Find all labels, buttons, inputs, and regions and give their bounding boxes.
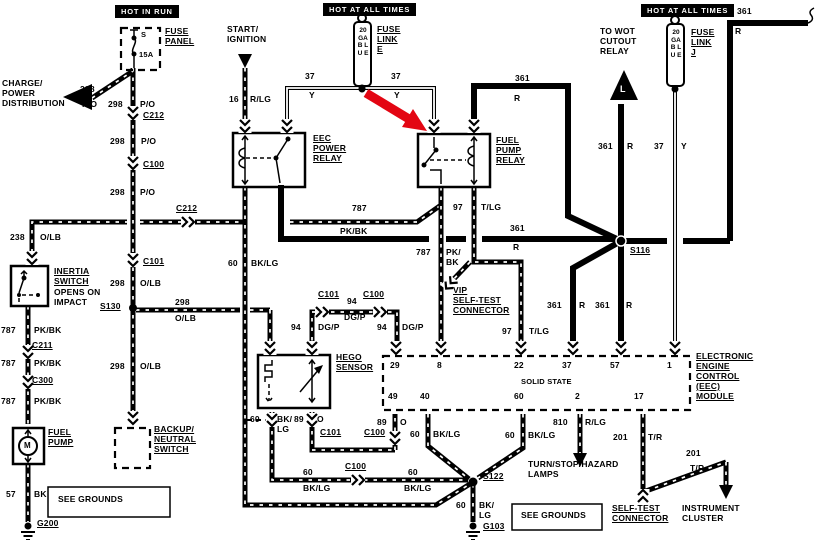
- instrument-cluster-arrow: [719, 485, 733, 499]
- instrument-cluster-label: INSTRUMENT CLUSTER: [682, 503, 740, 523]
- wire-color: R/LG: [585, 417, 606, 427]
- wire-num: 361: [547, 300, 562, 310]
- wire-num: 361: [737, 6, 752, 16]
- wire-color: T/LG: [481, 202, 501, 212]
- vip-self-test-label: VIP SELF-TEST CONNECTOR: [453, 285, 509, 315]
- splice-s116: [616, 236, 626, 246]
- wire-num: 298: [110, 136, 125, 146]
- wire-color: T/R: [690, 463, 704, 473]
- wire-color: Y: [394, 90, 400, 100]
- see-grounds-label-2: SEE GROUNDS: [521, 510, 586, 520]
- wire-color: BK/LG: [528, 430, 555, 440]
- motor-letter: M: [24, 441, 31, 451]
- wire-num: 60: [505, 430, 515, 440]
- fuse-link-j-label: FUSE LINK J: [691, 27, 714, 57]
- fuse-link-e-gauge: 20 GA B L U E: [356, 27, 370, 57]
- wire-num: 298: [175, 297, 190, 307]
- wire-color: BK/LG: [433, 429, 460, 439]
- wire-color: R/LG: [250, 94, 271, 104]
- splice-s130: [129, 304, 137, 312]
- wire-color: BK/LG: [404, 483, 431, 493]
- header-hot-in-run: HOT IN RUN: [115, 5, 179, 18]
- wire-num: 60: [408, 467, 418, 477]
- wire-color: PK/ BK: [446, 247, 461, 267]
- connector-c300: C300: [32, 375, 53, 385]
- fuse-rating-label: 15A: [139, 50, 153, 60]
- pin-2: 2: [575, 391, 580, 401]
- wire-continuation-squiggle: [808, 8, 814, 23]
- wire-num: 787: [1, 396, 16, 406]
- wiring-diagram: HOT IN RUN HOT AT ALL TIMES HOT AT ALL T…: [0, 0, 819, 540]
- wire-num: 201: [686, 448, 701, 458]
- splice-s122-label: S122: [483, 471, 504, 481]
- wire-color: O: [317, 414, 324, 424]
- inertia-switch-note: OPENS ON IMPACT: [54, 287, 100, 307]
- inertia-switch-box: [11, 266, 48, 306]
- wire-color: R: [513, 242, 519, 252]
- wire-60-pin40: [428, 414, 469, 479]
- pin-40: 40: [420, 391, 430, 401]
- splice-s130-label: S130: [100, 301, 121, 311]
- wire-num: 60: [228, 258, 238, 268]
- wire-inertia-c212: [32, 205, 441, 262]
- eec-relay-internals: [239, 136, 291, 184]
- wire-color: P/O: [82, 99, 97, 109]
- wire-color: R: [626, 300, 632, 310]
- connector-c100-main: C100: [143, 159, 164, 169]
- wire-num: 60: [410, 429, 420, 439]
- solid-state-label: SOLID STATE: [521, 377, 572, 387]
- wire-num: 201: [613, 432, 628, 442]
- wire-num: 37: [391, 71, 401, 81]
- wire-num: 37: [654, 141, 664, 151]
- inertia-switch-label: INERTIA SWITCH: [54, 266, 89, 286]
- wire-num: 787: [1, 358, 16, 368]
- wire-num: 60: [303, 467, 313, 477]
- header-hot-at-all-times-mid: HOT AT ALL TIMES: [323, 3, 416, 16]
- splice-s122: [469, 478, 478, 487]
- wire-num: 787: [1, 325, 16, 335]
- wire-num: 94: [347, 296, 357, 306]
- see-grounds-label-1: SEE GROUNDS: [58, 494, 123, 504]
- pin-37: 37: [562, 360, 572, 370]
- wire-color: BK/LG: [303, 483, 330, 493]
- eec-power-relay-label: EEC POWER RELAY: [313, 133, 346, 163]
- wire-num: 94: [291, 322, 301, 332]
- wire-color: O/LB: [140, 361, 161, 371]
- wire-color: R: [735, 26, 741, 36]
- wire-inertia-c212: [32, 205, 441, 262]
- wire-num: 57: [6, 489, 16, 499]
- wire-num: 97: [453, 202, 463, 212]
- connector-c212-main: C212: [143, 110, 164, 120]
- wire-color: PK/BK: [34, 396, 61, 406]
- wire-color: T/R: [648, 432, 662, 442]
- hego-sensor-label: HEGO SENSOR: [336, 352, 373, 372]
- fuse-panel-label: FUSE PANEL: [165, 26, 194, 46]
- connector-c100-bot: C100: [364, 427, 385, 437]
- wire-color: O/LB: [140, 278, 161, 288]
- wire-color: BK/ LG: [277, 414, 292, 434]
- turn-stop-label: TURN/STOP/HAZARD LAMPS: [528, 459, 618, 479]
- fuel-pump-relay-internals: [422, 137, 478, 184]
- wire-num: 89: [294, 414, 304, 424]
- wire-color: R: [514, 93, 520, 103]
- wire-num: 298: [80, 84, 95, 94]
- splice-fuse-link-e: [359, 85, 366, 92]
- connector-c101-main: C101: [143, 256, 164, 266]
- wire-color: BK/ LG: [479, 500, 494, 520]
- eec-power-relay-box: [233, 133, 305, 187]
- inertia-switch-internals: [17, 271, 40, 302]
- connector-c100-top: C100: [363, 289, 384, 299]
- start-ignition-arrow: [238, 54, 252, 68]
- wire-num: 361: [595, 300, 610, 310]
- wire-num: 810: [553, 417, 568, 427]
- connector-c100-low: C100: [345, 461, 366, 471]
- wire-color: P/O: [141, 136, 156, 146]
- wire-num: 16: [229, 94, 239, 104]
- pin-57: 57: [610, 360, 620, 370]
- connector-c212-h: C212: [176, 203, 197, 213]
- wire-60-pin60: [478, 414, 523, 478]
- wire-num: 298: [110, 187, 125, 197]
- wire-num: 89: [377, 417, 387, 427]
- wire-num: 361: [598, 141, 613, 151]
- wire-color: T/LG: [529, 326, 549, 336]
- wire-color: DG/P: [344, 312, 366, 322]
- wire-num: 787: [416, 247, 431, 257]
- connector-c211: C211: [32, 340, 53, 350]
- wire-color: P/O: [140, 187, 155, 197]
- wire-60-pin40: [428, 414, 469, 479]
- wire-num: 298: [108, 99, 123, 109]
- ground-g103-symbol: [466, 523, 480, 540]
- wire-charge-branch: [92, 71, 133, 98]
- fuse-id-label: S: [141, 30, 146, 40]
- ground-g103-label: G103: [483, 521, 505, 531]
- connector-c101-bot: C101: [320, 427, 341, 437]
- fuse-symbol: [130, 30, 138, 68]
- wire-color: DG/P: [318, 322, 340, 332]
- wire-num: 60: [456, 500, 466, 510]
- header-hot-at-all-times-right: HOT AT ALL TIMES: [641, 4, 734, 17]
- wire-num: 361: [510, 223, 525, 233]
- wire-60-pin60: [478, 414, 523, 478]
- wire-color: O: [400, 417, 407, 427]
- wire-num: 787: [352, 203, 367, 213]
- pin-29: 29: [390, 360, 400, 370]
- wire-color: PK/BK: [340, 226, 367, 236]
- wire-color: Y: [681, 141, 687, 151]
- eec-module-label: ELECTRONIC ENGINE CONTROL (EEC) MODULE: [696, 351, 753, 401]
- pin-17: 17: [634, 391, 644, 401]
- fuel-pump-label: FUEL PUMP: [48, 427, 73, 447]
- wot-relay-label: TO WOT CUTOUT RELAY: [600, 26, 636, 56]
- self-test-connector-label: SELF-TEST CONNECTOR: [612, 503, 668, 523]
- diagram-canvas: [0, 0, 819, 540]
- charge-power-label: CHARGE/ POWER DISTRIBUTION: [2, 78, 65, 108]
- wire-num: 298: [110, 361, 125, 371]
- fuel-pump-relay-label: FUEL PUMP RELAY: [496, 135, 525, 165]
- wire-color: R: [627, 141, 633, 151]
- wire-color: BK/LG: [251, 258, 278, 268]
- wire-color: Y: [309, 90, 315, 100]
- wot-arrow-letter: L: [620, 84, 626, 94]
- wire-color: BK: [34, 489, 47, 499]
- wire-num: 60: [250, 414, 260, 424]
- fuse-link-e-label: FUSE LINK E: [377, 24, 400, 54]
- wire-color: R: [579, 300, 585, 310]
- backup-neutral-label: BACKUP/ NEUTRAL SWITCH: [154, 424, 196, 454]
- connector-c101-top: C101: [318, 289, 339, 299]
- wire-num: 298: [110, 278, 125, 288]
- pin-60: 60: [514, 391, 524, 401]
- wire-color: O/LB: [175, 313, 196, 323]
- fuse-link-j-gauge: 20 GA B L U E: [669, 29, 683, 59]
- wire-color: PK/BK: [34, 325, 61, 335]
- wire-num: 37: [305, 71, 315, 81]
- wire-color: O/LB: [40, 232, 61, 242]
- backup-neutral-switch-box: [115, 428, 150, 468]
- wire-num: 238: [10, 232, 25, 242]
- wire-num: 94: [377, 322, 387, 332]
- wire-color: DG/P: [402, 322, 424, 332]
- pin-22: 22: [514, 360, 524, 370]
- ground-g200-label: G200: [37, 518, 59, 528]
- ground-g200-symbol: [21, 523, 35, 540]
- wire-color: P/O: [140, 99, 155, 109]
- hego-internals: [265, 360, 323, 402]
- pin-1: 1: [667, 360, 672, 370]
- wire-color: PK/BK: [34, 358, 61, 368]
- start-ignition-label: START/ IGNITION: [227, 24, 266, 44]
- pin-8: 8: [437, 360, 442, 370]
- wire-num: 361: [515, 73, 530, 83]
- wire-num: 97: [502, 326, 512, 336]
- pin-49: 49: [388, 391, 398, 401]
- splice-s116-label: S116: [630, 245, 650, 255]
